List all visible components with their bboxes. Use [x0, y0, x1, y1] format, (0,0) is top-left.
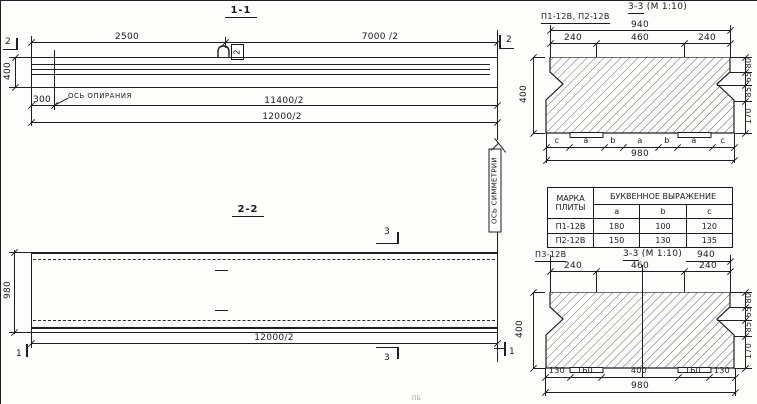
line — [31, 57, 497, 58]
cut-marker-1-right: 1 — [507, 347, 517, 357]
c1-letter-c2: c — [718, 136, 728, 146]
line — [550, 271, 730, 272]
line — [550, 25, 551, 57]
line — [745, 57, 746, 133]
line — [31, 64, 490, 65]
line — [504, 342, 506, 356]
table-header-expr: БУКВЕННОЕ ВЫРАЖЕНИЕ — [594, 188, 733, 205]
dim-980-left: 980 — [3, 278, 13, 302]
section-title-3-3-top: 3-3 (М 1:10) — [628, 2, 687, 12]
line — [550, 43, 730, 44]
table-header-mark: МАРКА ПЛИТЫ — [548, 188, 594, 219]
line — [596, 43, 597, 57]
slab-profile — [546, 292, 734, 368]
line — [497, 232, 498, 252]
line — [533, 133, 545, 134]
line — [730, 255, 731, 292]
line — [499, 35, 501, 48]
cut-marker-1-left: 1 — [14, 349, 24, 359]
c2-dim-240a: 240 — [553, 261, 593, 271]
line — [31, 327, 497, 329]
title-scale: (М 1:10) — [647, 2, 687, 12]
c1-letter-b1: b — [608, 136, 618, 146]
line — [596, 271, 597, 292]
blueprint-canvas: 1-1 2500 7000 /2 2 2 400 300 ОСЬ ОПИРАНИ… — [0, 0, 757, 404]
line — [9, 332, 31, 333]
line — [215, 310, 228, 311]
table-cell-a: 180 — [594, 219, 640, 234]
line — [497, 126, 498, 140]
c1-letter-b2: b — [662, 136, 672, 146]
table-col-b: b — [640, 205, 686, 219]
line — [734, 133, 752, 134]
line — [550, 30, 730, 31]
line — [497, 250, 498, 362]
dim-7000-2: 7000 /2 — [352, 32, 408, 42]
line — [31, 332, 32, 348]
c1-dim-400: 400 — [519, 81, 529, 107]
c1-dim-460: 460 — [620, 33, 660, 43]
line — [533, 57, 545, 58]
line — [54, 50, 55, 110]
table-row: П1-12В 180 100 120 — [548, 219, 733, 234]
title-scale: (М 1:10) — [642, 249, 682, 259]
letter-values-table: МАРКА ПЛИТЫ БУКВЕННОЕ ВЫРАЖЕНИЕ a b c П1… — [547, 187, 733, 248]
line — [9, 57, 31, 58]
table-col-c: c — [686, 205, 732, 219]
c2-dim-980: 980 — [614, 381, 666, 391]
line — [26, 344, 28, 357]
line — [31, 69, 490, 70]
line — [33, 320, 495, 321]
cross-section-hatch-top — [545, 57, 735, 139]
dim-2500: 2500 — [105, 32, 149, 42]
table-cell-a: 150 — [594, 234, 640, 248]
line — [684, 43, 685, 57]
line — [31, 87, 497, 88]
line — [497, 30, 498, 126]
line — [215, 270, 228, 271]
line — [56, 97, 69, 104]
line — [545, 392, 735, 393]
line — [376, 347, 397, 348]
c1-letter-a2: a — [635, 136, 645, 146]
c1-letter-a1: a — [581, 136, 591, 146]
symmetry-axis-label: ОСЬ СИММЕТРИИ — [489, 149, 502, 233]
line — [734, 336, 752, 337]
line — [717, 320, 752, 321]
cut-marker-3-bottom: 3 — [381, 353, 393, 363]
section-title-1-1: 1-1 — [225, 6, 257, 18]
line — [730, 72, 752, 73]
table-cell-mark: П2-12В — [548, 234, 594, 248]
dim-12000-2-bottom: 12000/2 — [250, 333, 298, 343]
line — [9, 87, 31, 88]
slab-profile — [546, 57, 734, 133]
line — [734, 368, 752, 369]
support-axis-label: ОСЬ ОПИРАНИЯ — [68, 91, 132, 101]
line — [31, 36, 32, 126]
line — [9, 252, 31, 253]
line — [14, 250, 15, 334]
line — [31, 343, 497, 344]
line — [31, 332, 497, 333]
c1-letter-c1: c — [552, 136, 562, 146]
line — [730, 307, 752, 308]
line — [546, 160, 734, 161]
table-cell-c: 135 — [686, 234, 732, 248]
dim-400-left: 400 — [3, 58, 13, 84]
lifting-loop-icon — [215, 44, 232, 58]
section-title-3-3-bottom: 3-3 (М 1:10) — [623, 249, 682, 259]
table-cell-b: 100 — [640, 219, 686, 234]
line — [533, 368, 545, 369]
plate-marks-label: П1-12В, П2-12В — [541, 12, 610, 24]
c2-dim-400: 400 — [515, 316, 525, 342]
title-text: 3-3 — [623, 249, 639, 261]
table-cell-b: 130 — [640, 234, 686, 248]
hook-tag-label: 2 — [233, 48, 243, 57]
line — [376, 243, 397, 244]
c2-dim-400b: 400 — [623, 366, 655, 376]
c1-dim-240a: 240 — [553, 33, 593, 43]
line — [3, 49, 17, 50]
dim-12000-2-top: 12000/2 — [258, 112, 306, 122]
line — [31, 74, 490, 75]
line — [730, 292, 752, 293]
c1-letter-a3: a — [689, 136, 699, 146]
line — [533, 292, 545, 293]
line — [730, 57, 752, 58]
line — [499, 48, 514, 49]
section-title-2-2: 2-2 — [232, 205, 264, 217]
line — [546, 147, 734, 148]
line — [0, 0, 757, 1]
line — [533, 57, 534, 133]
table-row: П2-12В 150 130 135 — [548, 234, 733, 248]
line — [686, 261, 730, 262]
line — [745, 292, 746, 368]
cut-marker-2-right: 2 — [504, 35, 514, 45]
line — [31, 105, 497, 106]
line — [31, 252, 32, 333]
c1-dim-980: 980 — [614, 149, 666, 159]
line — [225, 37, 226, 48]
line — [31, 252, 497, 254]
line — [0, 0, 1, 404]
line — [397, 347, 399, 359]
line — [31, 42, 497, 43]
line — [15, 57, 16, 87]
line — [684, 271, 685, 292]
line — [642, 265, 643, 377]
title-text: 3-3 — [628, 2, 644, 14]
c2-dim-460: 460 — [620, 261, 660, 271]
c1-dim-940: 940 — [620, 20, 660, 30]
line — [397, 232, 399, 244]
line — [550, 255, 551, 292]
c1-dim-240b: 240 — [687, 33, 727, 43]
cross-section-hatch-bottom — [545, 292, 735, 374]
line — [717, 85, 752, 86]
line — [31, 122, 497, 123]
cut-marker-3-top: 3 — [381, 227, 393, 237]
line — [730, 25, 731, 57]
c2-dim-240b: 240 — [688, 261, 728, 271]
line — [33, 259, 495, 260]
cut-marker-2-left: 2 — [3, 37, 13, 47]
table-cell-c: 120 — [686, 219, 732, 234]
table-cell-mark: П1-12В — [548, 219, 594, 234]
c2-dim-940: 940 — [686, 250, 726, 260]
line — [734, 101, 752, 102]
line — [533, 292, 534, 368]
table-col-a: a — [594, 205, 640, 219]
partial-text: ПБ — [412, 394, 421, 404]
